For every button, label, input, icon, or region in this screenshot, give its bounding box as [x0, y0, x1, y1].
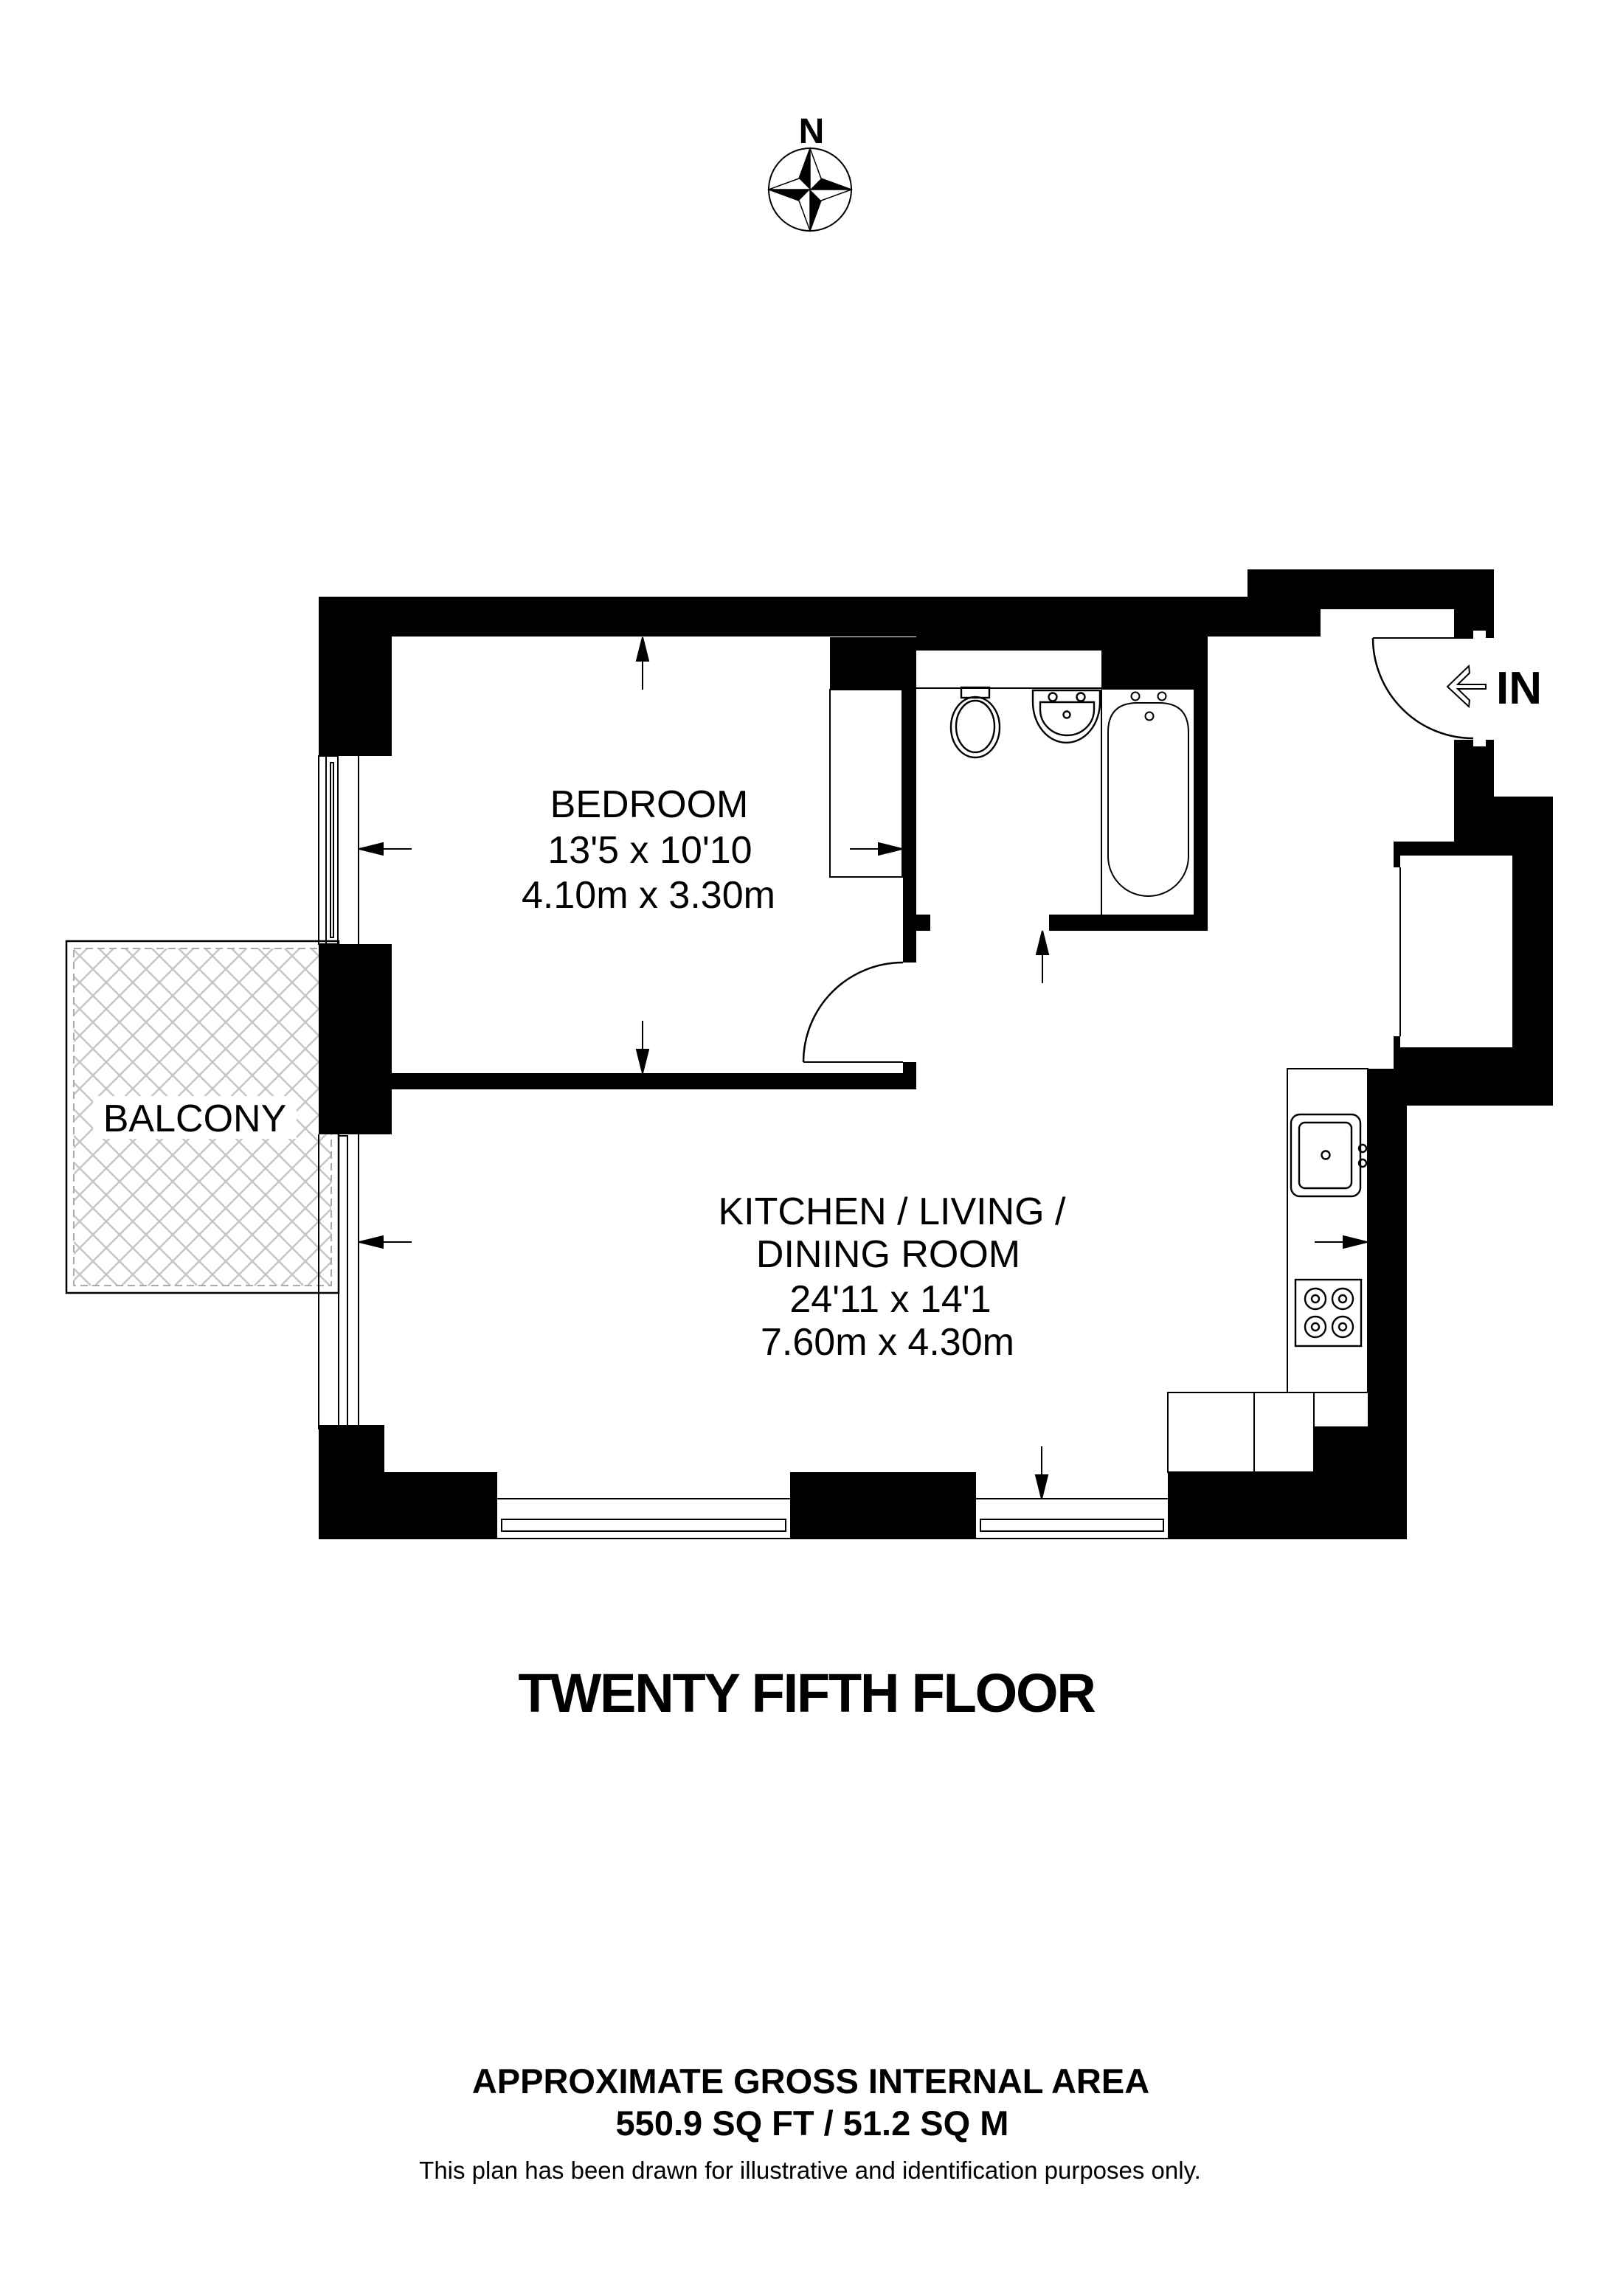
svg-text:7.60m x 4.30m: 7.60m x 4.30m [761, 1321, 1014, 1364]
svg-text:550.9 SQ FT / 51.2 SQ M: 550.9 SQ FT / 51.2 SQ M [616, 2103, 1009, 2143]
svg-text:24'11 x 14'1: 24'11 x 14'1 [789, 1278, 991, 1321]
svg-text:APPROXIMATE GROSS INTERNAL ARE: APPROXIMATE GROSS INTERNAL AREA [472, 2061, 1149, 2101]
svg-text:KITCHEN / LIVING /: KITCHEN / LIVING / [719, 1190, 1067, 1233]
svg-text:IN: IN [1496, 663, 1542, 714]
svg-text:TWENTY FIFTH FLOOR: TWENTY FIFTH FLOOR [518, 1662, 1095, 1724]
svg-text:BALCONY: BALCONY [103, 1097, 287, 1140]
svg-text:13'5 x 10'10: 13'5 x 10'10 [547, 829, 752, 872]
svg-text:This plan has been drawn for i: This plan has been drawn for illustrativ… [419, 2157, 1201, 2184]
svg-text:4.10m x 3.30m: 4.10m x 3.30m [522, 874, 775, 917]
svg-text:N: N [799, 112, 825, 151]
svg-text:DINING ROOM: DINING ROOM [756, 1233, 1020, 1276]
svg-text:BEDROOM: BEDROOM [550, 783, 749, 826]
